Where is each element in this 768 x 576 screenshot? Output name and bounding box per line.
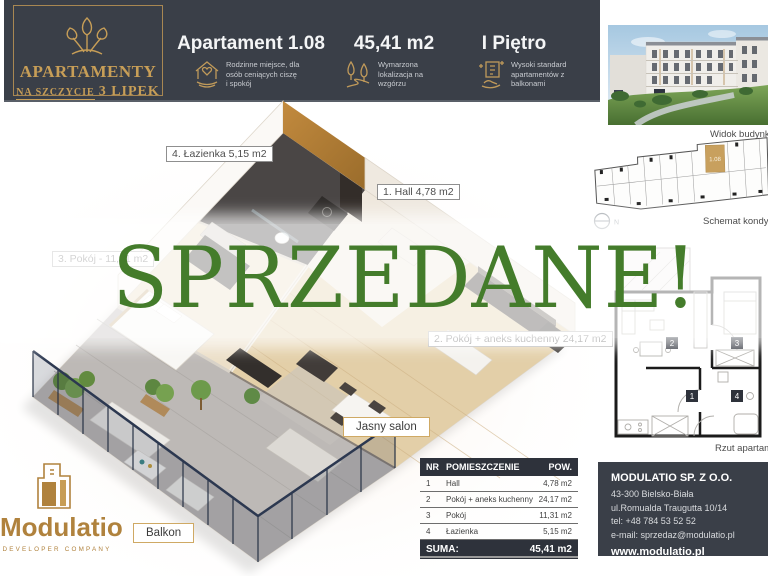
balcony-standard-icon <box>478 59 506 89</box>
company-address-1: 43-300 Bielsko-Biała <box>611 488 768 502</box>
company-phone: tel: +48 784 53 52 52 <box>611 515 768 529</box>
brand-subtitle: NA SZCZYCIE 3 LIPEK <box>14 82 162 100</box>
svg-text:4: 4 <box>735 392 740 401</box>
plan-label-hall: 1. Hall 4,78 m2 <box>377 184 460 200</box>
company-email: e-mail: sprzedaz@modulatio.pl <box>611 529 768 543</box>
company-info: MODULATIO SP. Z O.O. 43-300 Bielsko-Biał… <box>598 462 768 556</box>
home-heart-icon <box>193 59 221 89</box>
feature-1-text: Rodzinne miejsce, dla osób ceniących cis… <box>226 60 326 89</box>
company-address-2: ul.Romualda Traugutta 10/14 <box>611 502 768 516</box>
plan-2d-caption: Rzut apartamentu <box>715 443 768 454</box>
highlighted-unit-label: 1.08 <box>709 157 721 163</box>
table-row: 3 Pokój 11,31 m2 <box>420 508 578 524</box>
apartment-title: Apartament 1.08 <box>166 33 336 57</box>
apartment-area: 45,41 m2 <box>334 33 454 57</box>
floor-schematic: 1.08 <box>594 138 768 211</box>
brand-logo: APARTAMENTY NA SZCZYCIE 3 LIPEK <box>13 5 163 96</box>
table-underline <box>420 556 578 558</box>
company-website: www.modulatio.pl <box>611 546 768 558</box>
table-row: 2 Pokój + aneks kuchenny 24,17 m2 <box>420 492 578 508</box>
table-row: 4 Łazienka 5,15 m2 <box>420 524 578 540</box>
tree-logo-icon <box>58 10 116 60</box>
plan-label-salon: Jasny salon <box>343 417 430 437</box>
apartment-floor: I Piętro <box>456 33 572 57</box>
plan-label-balcony: Balkon <box>133 523 194 543</box>
brand-name: APARTAMENTY <box>14 62 162 82</box>
rooms-table-header: NR POMIESZCZENIE POW. <box>420 458 578 476</box>
company-name: MODULATIO SP. Z O.O. <box>611 472 768 484</box>
header-bar: APARTAMENTY NA SZCZYCIE 3 LIPEK Apartame… <box>4 0 600 102</box>
developer-name: Modulatio <box>0 512 114 543</box>
feature-2-text: Wymarzona lokalizacja na wzgórzu <box>378 60 454 89</box>
sold-banner: SPRZEDANE! <box>46 236 764 320</box>
feature-3-text: Wysoki standard apartamentów z balkonami <box>511 60 595 89</box>
rooms-table: NR POMIESZCZENIE POW. 1 Hall 4,78 m2 2 P… <box>420 458 578 559</box>
schematic-caption: Schemat kondygnacji <box>703 216 768 227</box>
developer-building-icon <box>30 460 86 512</box>
svg-text:1: 1 <box>690 392 695 401</box>
highlighted-unit <box>705 145 725 172</box>
room-number-badges: 2 3 1 4 <box>666 337 743 402</box>
building-photo <box>608 25 768 125</box>
developer-tagline: DEVELOPER COMPANY <box>0 546 114 553</box>
plan-label-bathroom: 4. Łazienka 5,15 m2 <box>166 146 273 162</box>
photo-caption: Widok budynku <box>710 129 768 140</box>
table-row: 1 Hall 4,78 m2 <box>420 476 578 492</box>
svg-text:3: 3 <box>735 339 740 348</box>
svg-text:2: 2 <box>670 339 675 348</box>
hill-location-icon <box>344 59 372 89</box>
